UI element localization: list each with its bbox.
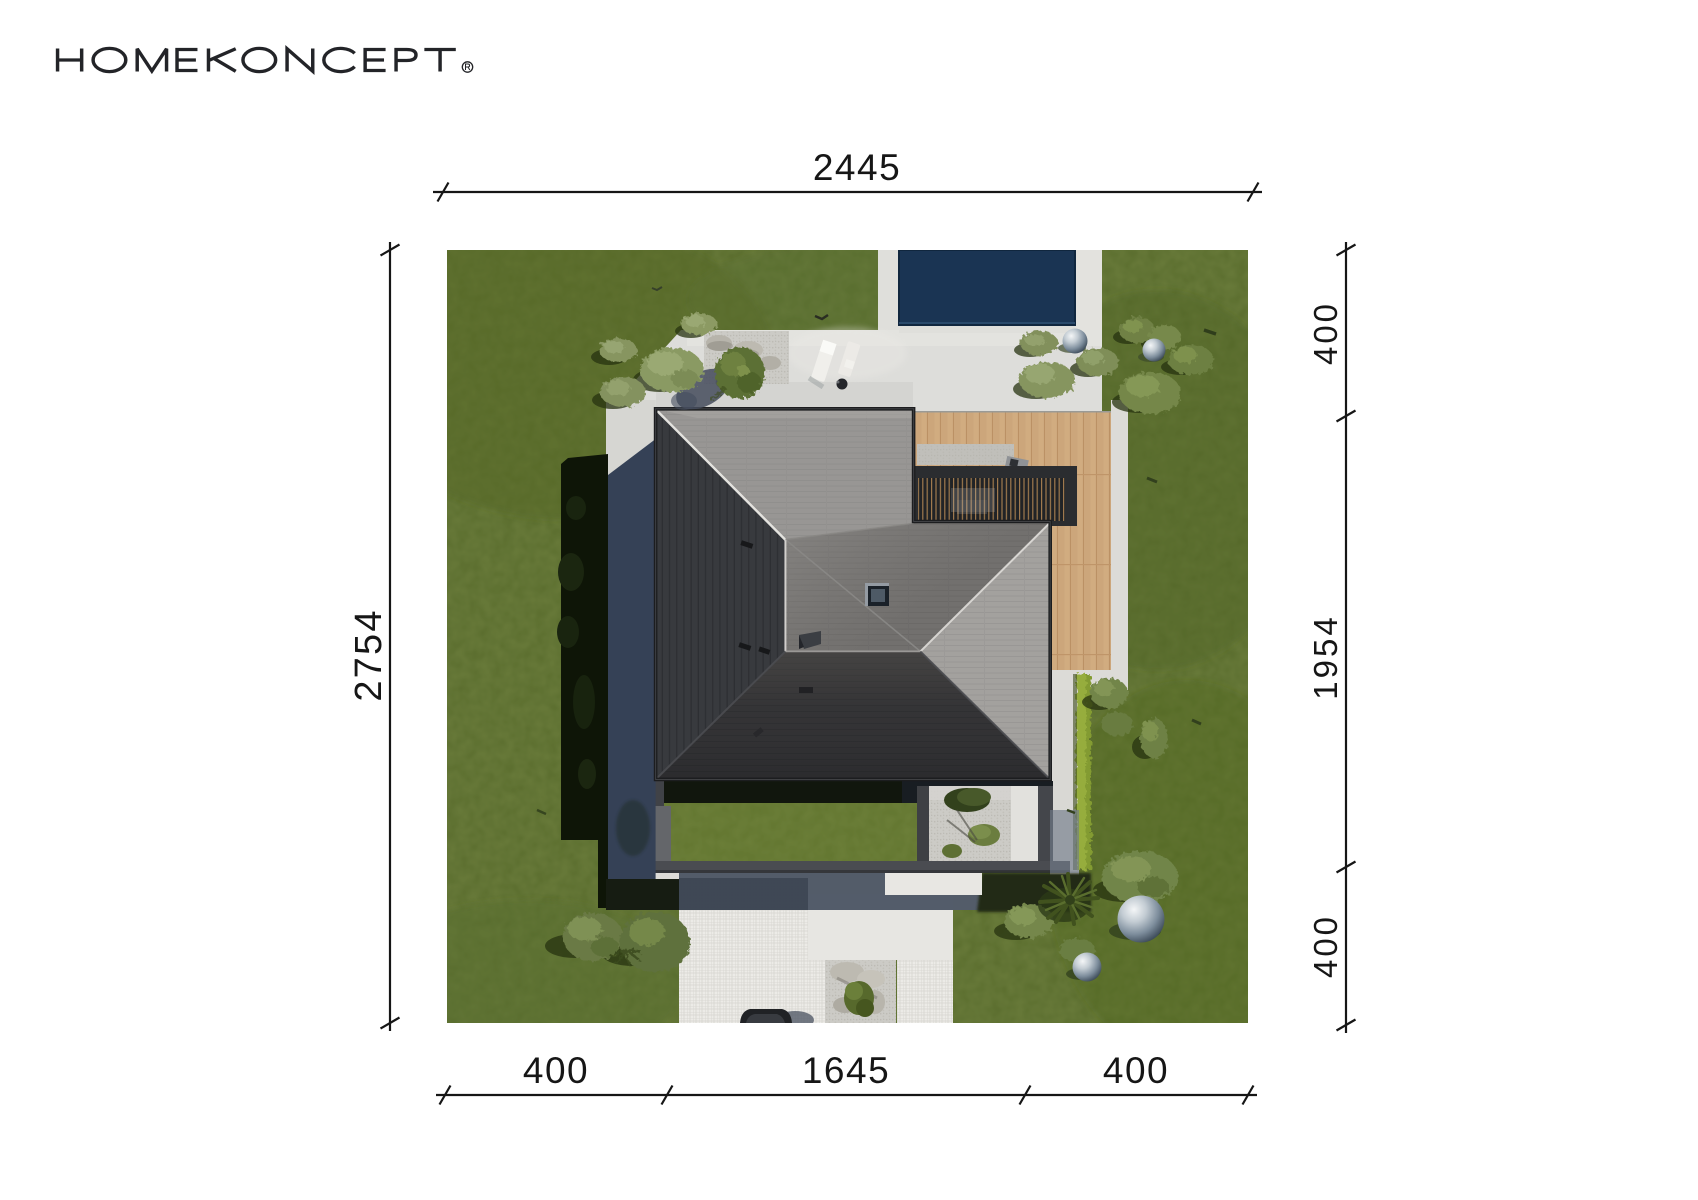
svg-text:1645: 1645 xyxy=(802,1050,890,1091)
svg-text:2445: 2445 xyxy=(813,147,901,188)
svg-text:400: 400 xyxy=(1307,301,1344,365)
svg-text:400: 400 xyxy=(1103,1050,1169,1091)
svg-text:400: 400 xyxy=(523,1050,589,1091)
svg-text:2754: 2754 xyxy=(348,608,390,701)
svg-text:1954: 1954 xyxy=(1307,614,1344,699)
svg-text:400: 400 xyxy=(1307,914,1344,978)
